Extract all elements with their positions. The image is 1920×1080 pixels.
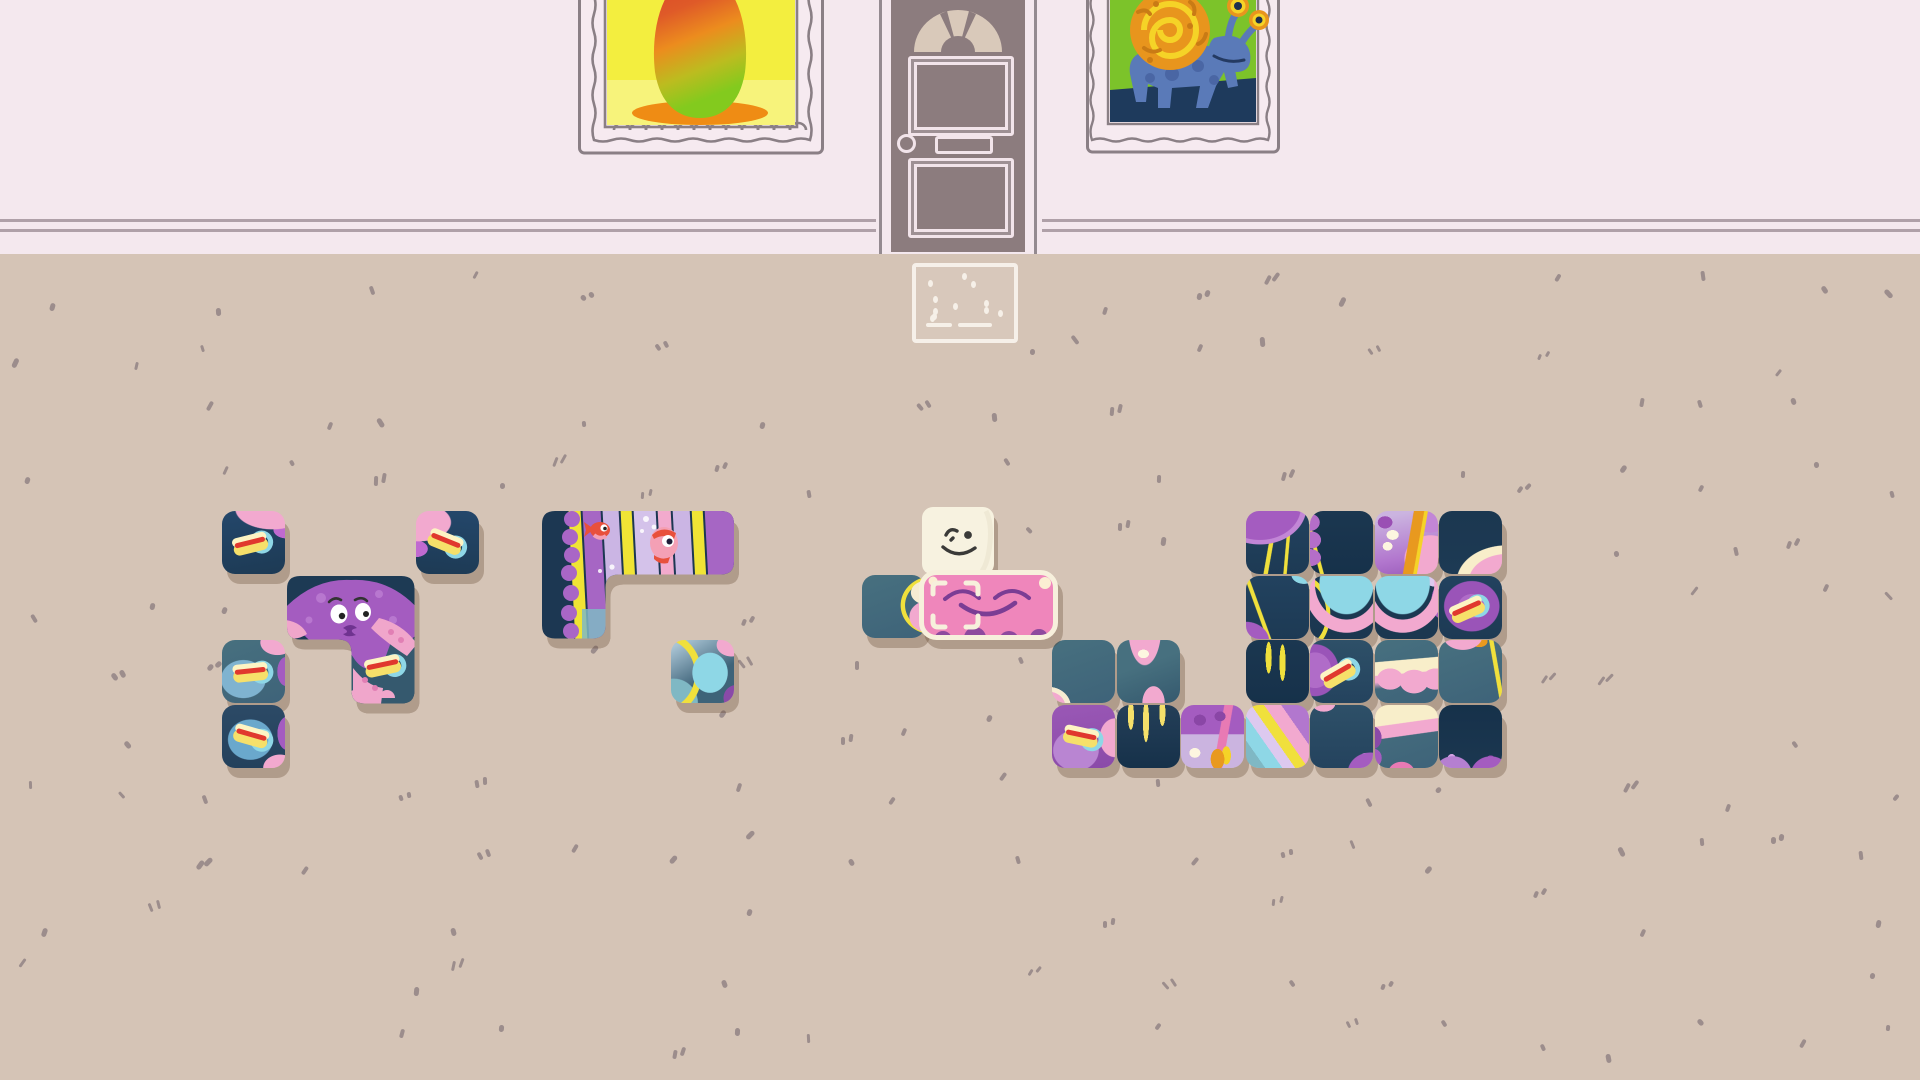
floor-speckle <box>500 483 505 489</box>
puzzle-piece-stripes[interactable] <box>542 511 736 640</box>
puzzle-tile[interactable] <box>1246 640 1309 703</box>
puzzle-tile[interactable] <box>1310 511 1373 574</box>
puzzle-tile[interactable] <box>1375 511 1438 574</box>
floor-speckle <box>374 476 378 486</box>
puzzle-tile[interactable] <box>1052 640 1115 703</box>
mango-fruit <box>654 0 746 118</box>
puzzle-tile[interactable] <box>671 640 734 703</box>
hotdog-icon <box>420 521 475 569</box>
floor-speckle <box>1461 471 1465 479</box>
puzzle-tile[interactable] <box>1117 640 1180 703</box>
puzzle-tile[interactable] <box>1246 705 1309 768</box>
hotdog-icon <box>229 655 278 693</box>
puzzle-tile[interactable] <box>222 640 285 703</box>
floor-speckle <box>1700 838 1704 847</box>
floor-speckle <box>483 777 487 785</box>
door-slab <box>891 0 1025 252</box>
door-knob <box>897 134 916 153</box>
floor-speckle <box>29 781 33 789</box>
snail-creature-painting <box>1086 0 1280 162</box>
hotdog-icon <box>228 523 281 566</box>
door-panel <box>908 56 1014 136</box>
puzzle-tile[interactable] <box>1375 705 1438 768</box>
floor-speckle <box>1157 475 1161 483</box>
hotdog-icon <box>1058 717 1110 759</box>
puzzle-tile[interactable] <box>222 705 285 768</box>
floor-speckle <box>1289 849 1294 855</box>
game-scene <box>0 0 1920 1080</box>
puzzle-tile[interactable] <box>1246 511 1309 574</box>
mango-painting <box>578 0 824 160</box>
puzzle-tile[interactable] <box>1375 640 1438 703</box>
doormat <box>912 263 1018 343</box>
hotdog-icon <box>227 716 280 760</box>
hotdog-icon <box>1314 648 1370 700</box>
door-frame-line <box>1034 0 1037 254</box>
floor-speckle <box>1118 523 1122 531</box>
door-panel <box>908 158 1014 238</box>
puzzle-tile[interactable] <box>1310 576 1373 639</box>
puzzle-tile[interactable] <box>862 575 925 638</box>
floor-speckle <box>841 737 845 745</box>
floor-speckle <box>1030 349 1035 355</box>
wilmot-character[interactable] <box>920 505 996 577</box>
letter-slot <box>935 136 993 154</box>
puzzle-tile[interactable] <box>1439 511 1502 574</box>
puzzle-tile[interactable] <box>1052 705 1115 768</box>
door <box>876 0 1042 254</box>
floor-speckle <box>1260 337 1266 347</box>
floor-speckle <box>1103 921 1107 928</box>
floor-speckle <box>216 308 221 317</box>
floor-speckle <box>1771 837 1776 844</box>
floor-speckle <box>1156 779 1160 787</box>
floor-speckle <box>855 661 859 670</box>
puzzle-tile[interactable] <box>1310 640 1373 703</box>
puzzle-tile[interactable] <box>222 511 285 574</box>
puzzle-tile[interactable] <box>416 511 479 574</box>
floor-speckle <box>499 1025 505 1032</box>
puzzle-tile[interactable] <box>1439 576 1502 639</box>
puzzle-tile[interactable] <box>1439 640 1502 703</box>
puzzle-tile[interactable] <box>1246 576 1309 639</box>
held-piece-pink[interactable] <box>919 570 1058 640</box>
puzzle-tile[interactable] <box>1181 705 1244 768</box>
floor-speckle <box>992 413 997 423</box>
door-frame-line <box>879 0 882 254</box>
puzzle-tile[interactable] <box>1439 705 1502 768</box>
puzzle-tile[interactable] <box>1117 705 1180 768</box>
hotdog-icon <box>1443 585 1498 634</box>
puzzle-tile[interactable] <box>1375 576 1438 639</box>
puzzle-piece-octopus[interactable] <box>287 576 416 705</box>
floor-speckle <box>582 421 587 427</box>
floor-speckle <box>1886 1025 1890 1032</box>
fanlight-window <box>910 8 1006 52</box>
puzzle-tile[interactable] <box>1310 705 1373 768</box>
floor-speckle <box>735 1028 740 1036</box>
